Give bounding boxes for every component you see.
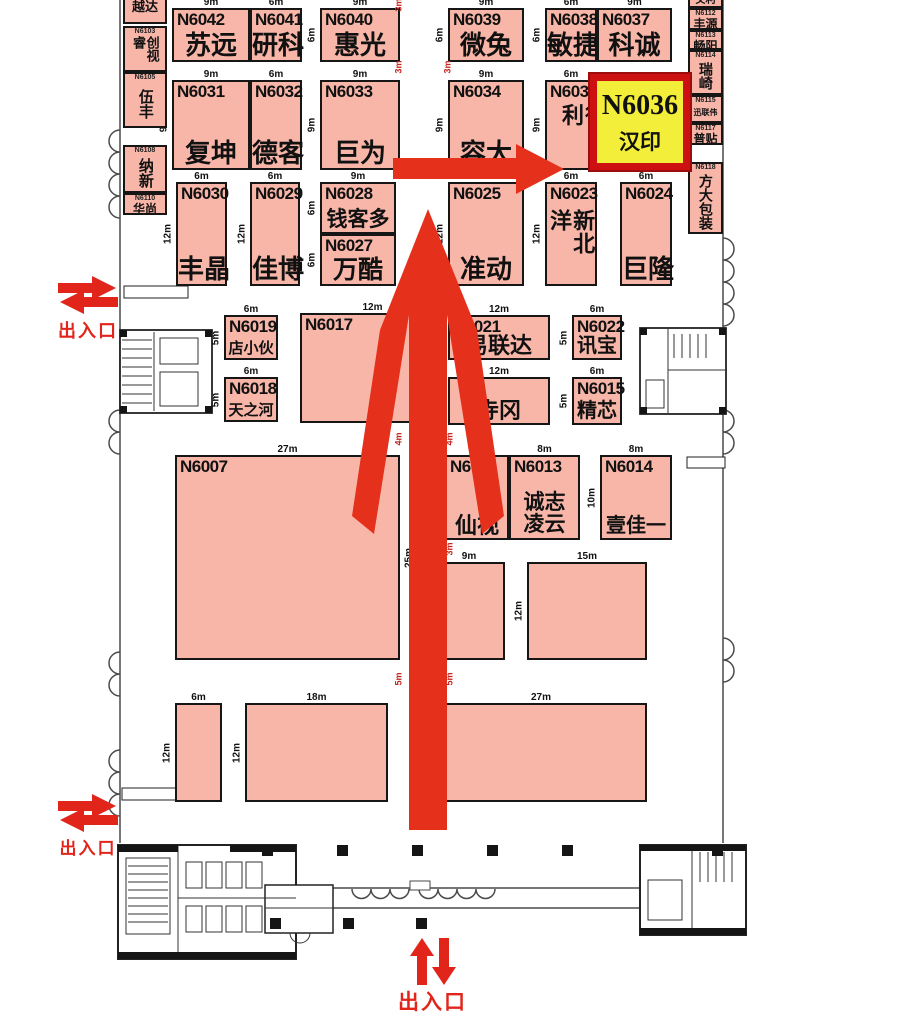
width-dimension: 15m: [529, 551, 645, 562]
booth-n6030: N6030丰晶6m12m: [176, 182, 227, 286]
width-dimension: 8m: [511, 444, 578, 455]
width-dimension: 6m: [226, 366, 276, 377]
height-dimension: 12m: [435, 224, 446, 244]
booth-n6034: N6034容大9m9m: [448, 80, 524, 170]
booth-name: 华尚: [133, 203, 157, 215]
width-dimension: 6m: [177, 692, 220, 703]
height-dimension: 9m: [435, 118, 446, 132]
aisle-dimension: 4m: [445, 432, 455, 445]
booth-n6042: N6042苏远9m6m: [172, 8, 250, 62]
width-dimension: 9m: [174, 69, 248, 80]
height-dimension: 12m: [163, 224, 174, 244]
width-dimension: 6m: [547, 171, 595, 182]
booth-name: 钱客多: [322, 209, 394, 231]
booth-name: 创视睿: [131, 36, 158, 70]
booth-number: N6024: [625, 184, 673, 204]
booth-number: N6108: [135, 147, 156, 155]
booth-number: N6017: [305, 315, 353, 335]
booth-name-line: 凌云: [511, 514, 578, 536]
booth-n6112: N6112丰源: [688, 8, 723, 30]
booth-name: 仙视: [447, 514, 507, 537]
booth-n6118: N6118方大包装: [688, 162, 723, 234]
booth-name: 惠光: [322, 32, 398, 59]
height-dimension: 5m: [211, 392, 222, 406]
width-dimension: 9m: [322, 69, 398, 80]
height-dimension: 25m: [404, 547, 415, 567]
booth-name: 容大: [450, 140, 522, 167]
booth-number: N6015: [577, 379, 625, 399]
width-dimension: 6m: [252, 171, 298, 182]
width-dimension: 9m: [450, 69, 522, 80]
booth-name: 研科: [252, 32, 300, 59]
booth-number: N6031: [177, 82, 225, 102]
booth-n6014: N6014壹佳一8m10m: [600, 455, 672, 540]
entrance-label: 出入口: [398, 992, 467, 1013]
booth-block: 寺冈12m: [448, 377, 550, 425]
booth-name: 敏捷: [547, 32, 595, 59]
height-dimension: 12m: [420, 601, 431, 621]
booth-name: 迅联伟: [694, 105, 718, 121]
booth-name: 伍丰: [137, 82, 153, 126]
aisle-dimension: 5m: [394, 672, 404, 685]
width-dimension: 9m: [322, 0, 398, 8]
booth-name: 复坤: [174, 140, 248, 167]
aisle-dimension: 4m: [394, 432, 404, 445]
booth-n6025: N6025准动9m12m: [448, 182, 524, 286]
booth-name: 越达: [132, 0, 158, 22]
width-dimension: 6m: [547, 69, 595, 80]
booth-number: N6014: [605, 457, 653, 477]
booth-name: 巨隆: [622, 256, 670, 283]
booth-name: 天之河: [226, 403, 276, 419]
entrance-label: 出入口: [56, 840, 120, 857]
booth-n6022: N6022讯宝6m5m: [572, 315, 622, 360]
booth-name: 寺冈: [450, 399, 548, 422]
booth-number: N6037: [602, 10, 650, 30]
height-dimension: 5m: [211, 330, 222, 344]
height-dimension: 9m: [532, 118, 543, 132]
booth-block: 18m12m: [245, 703, 388, 802]
booth-number: N6018: [229, 379, 277, 399]
booth-number: N6042: [177, 10, 225, 30]
booth-name-line: 诚志: [511, 492, 578, 514]
booth-number: N6022: [577, 317, 625, 337]
width-dimension: 12m: [302, 302, 443, 313]
entrance: 出入口: [56, 274, 120, 340]
booth-number: N6105: [135, 74, 156, 82]
booth-number: N6115: [695, 97, 715, 105]
booth-n6117: N6117普贴: [688, 123, 723, 145]
booth-name: 文利: [696, 0, 716, 7]
booth-number: N6029: [255, 184, 303, 204]
booth-number: N6007: [180, 457, 228, 477]
width-dimension: 9m: [450, 0, 522, 8]
width-dimension: 18m: [247, 692, 386, 703]
width-dimension: 9m: [450, 171, 522, 182]
aisle-dimension: 3m: [394, 0, 404, 12]
booth-name: 科诚: [599, 32, 670, 59]
booth-number: N6027: [325, 236, 373, 256]
booth-block: 15m12m: [527, 562, 647, 660]
booth-n6039: N6039微兔9m6m: [448, 8, 524, 62]
booth-n6038: N6038敏捷6m6m: [545, 8, 597, 62]
booth-name: 讯宝: [574, 336, 620, 357]
booth-n6103: N6103创视睿: [123, 26, 167, 72]
booth-number: N6041: [255, 10, 303, 30]
width-dimension: 6m: [252, 69, 300, 80]
booth-block: 6m12m: [175, 703, 222, 802]
height-dimension: 12m: [532, 224, 543, 244]
booth-n6110: N6110华尚: [123, 193, 167, 215]
booth-n6033: N6033巨为9m9m: [320, 80, 400, 170]
width-dimension: 6m: [178, 171, 225, 182]
height-dimension: 6m: [307, 253, 318, 267]
booth-number: N6038: [550, 10, 598, 30]
booth-name: 巨为: [322, 140, 398, 167]
booth-n60: N60仙视: [445, 455, 509, 540]
booth-文利: 文利: [688, 0, 723, 8]
booth-number: N6034: [453, 82, 501, 102]
booth-number: N6032: [255, 82, 303, 102]
booth-n6105: N6105伍丰: [123, 72, 167, 128]
entrance-arrows-icon: [56, 274, 120, 316]
booth-number: N6040: [325, 10, 373, 30]
booth-name: 万酷: [322, 257, 394, 283]
exhibition-floor-plan: N6042苏远9m6mN6041研科6mN6040惠光9m6mN6039微兔9m…: [0, 0, 920, 1027]
booth-n6032: N6032德客6m: [250, 80, 302, 170]
booth-number: N6114: [695, 52, 715, 60]
booth-n6021: N6021易联达12m: [448, 315, 550, 360]
booth-name: 苏远: [174, 32, 248, 59]
booth-name: 德客: [252, 140, 300, 167]
booth-n6023: N6023新北洋6m12m: [545, 182, 597, 286]
height-dimension: 5m: [559, 330, 570, 344]
booth-number: N6028: [325, 184, 373, 204]
booth-number: N6025: [453, 184, 501, 204]
width-dimension: 9m: [599, 0, 670, 8]
width-dimension: 6m: [547, 0, 595, 8]
entrance-arrows-icon: [56, 792, 120, 834]
booth-name: 精芯: [574, 401, 620, 422]
booth-n6031: N6031复坤9m9m: [172, 80, 250, 170]
booth-n6029: N6029佳博6m12m: [250, 182, 300, 286]
booth-number: N6103: [135, 28, 156, 36]
height-dimension: 12m: [514, 601, 525, 621]
booth-block: 9m12m: [433, 562, 505, 660]
booth-name: 畅阳: [693, 40, 717, 50]
booth-block: 27m: [435, 703, 647, 802]
booth-number: N6033: [325, 82, 373, 102]
booth-name: 方大包装: [698, 172, 713, 232]
width-dimension: 6m: [226, 304, 276, 315]
booth-n6108: N6108纳新: [123, 145, 167, 193]
booth-n6040: N6040惠光9m6m: [320, 8, 400, 62]
width-dimension: 6m: [252, 0, 300, 8]
booth-n6114: N6114瑞崎: [688, 50, 723, 95]
width-dimension: 6m: [622, 171, 670, 182]
aisle-dimension: 5m: [445, 672, 455, 685]
height-dimension: 6m: [435, 28, 446, 42]
booth-name: 普贴: [693, 133, 717, 145]
booth-n6113: N6113畅阳: [688, 30, 723, 50]
booth-n6037: N6037科诚9m: [597, 8, 672, 62]
aisle-dimension: 3m: [394, 160, 404, 173]
booth-n6007: N600727m25m: [175, 455, 400, 660]
booth-n6018: N6018天之河6m5m: [224, 377, 278, 422]
aisle-dimension: 3m: [443, 60, 453, 73]
height-dimension: 5m: [559, 394, 570, 408]
booth-name: 准动: [450, 256, 522, 283]
width-dimension: 9m: [174, 0, 248, 8]
height-dimension: 9m: [307, 118, 318, 132]
width-dimension: 12m: [450, 366, 548, 377]
booth-name: 纳新: [137, 155, 153, 191]
booth-number: N6013: [514, 457, 562, 477]
width-dimension: 6m: [574, 304, 620, 315]
booth-n6028: N6028钱客多9m6m: [320, 182, 396, 234]
height-dimension: 6m: [307, 28, 318, 42]
booth-number: N6023: [550, 184, 598, 204]
booth-n6013: N6013诚志凌云8m: [509, 455, 580, 540]
booth-name: 瑞崎: [698, 60, 713, 93]
height-dimension: 6m: [307, 201, 318, 215]
booth-name: 易联达: [450, 334, 548, 357]
booth-name: 微兔: [450, 32, 522, 59]
booth-name: 壹佳一: [602, 516, 670, 537]
aisle-dimension: 3m: [394, 60, 404, 73]
entrance: 出入口: [56, 792, 120, 857]
entrance: 出入口: [398, 936, 467, 1013]
width-dimension: 9m: [322, 171, 394, 182]
booth-number: N60: [450, 457, 480, 477]
height-dimension: 12m: [232, 742, 243, 762]
booth-name: 诚志凌云: [511, 492, 578, 536]
height-dimension: 10m: [587, 487, 598, 507]
booth-number: N6030: [181, 184, 229, 204]
booth-n6036-highlight: N6036汉印: [590, 74, 690, 170]
height-dimension: 6m: [532, 28, 543, 42]
booth-n6027: N6027万酷6m: [320, 234, 396, 286]
booth-number: N6118: [695, 164, 715, 172]
width-dimension: 8m: [602, 444, 670, 455]
booth-n6017: N601712m: [300, 313, 445, 423]
booth-number: N6039: [453, 10, 501, 30]
booth-n6041: N6041研科6m: [250, 8, 302, 62]
width-dimension: 27m: [177, 444, 398, 455]
highlight-booth-number: N6036: [602, 92, 678, 120]
height-dimension: 12m: [162, 742, 173, 762]
width-dimension: 12m: [450, 304, 548, 315]
booth-name: 店小伙: [226, 341, 276, 357]
booth-n6115: N6115迅联伟: [688, 95, 723, 123]
booth-number: N6019: [229, 317, 277, 337]
highlight-booth-name: 汉印: [619, 132, 661, 153]
booth-name: 佳博: [252, 256, 298, 283]
booth-n6019: N6019店小伙6m5m: [224, 315, 278, 360]
entrance-label: 出入口: [56, 322, 120, 340]
width-dimension: 6m: [574, 366, 620, 377]
booth-name: 丰晶: [178, 256, 225, 283]
booth-name: 丰源: [693, 18, 717, 30]
entrance-arrows-icon: [408, 936, 458, 986]
aisle-dimension: 3m: [445, 542, 455, 555]
booth-n6015: N6015精芯6m5m: [572, 377, 622, 425]
booth-n6024: N6024巨隆6m: [620, 182, 672, 286]
booth-越达: 越达: [123, 0, 167, 24]
height-dimension: 12m: [237, 224, 248, 244]
width-dimension: 27m: [437, 692, 645, 703]
booth-name: 新北洋: [548, 209, 594, 259]
